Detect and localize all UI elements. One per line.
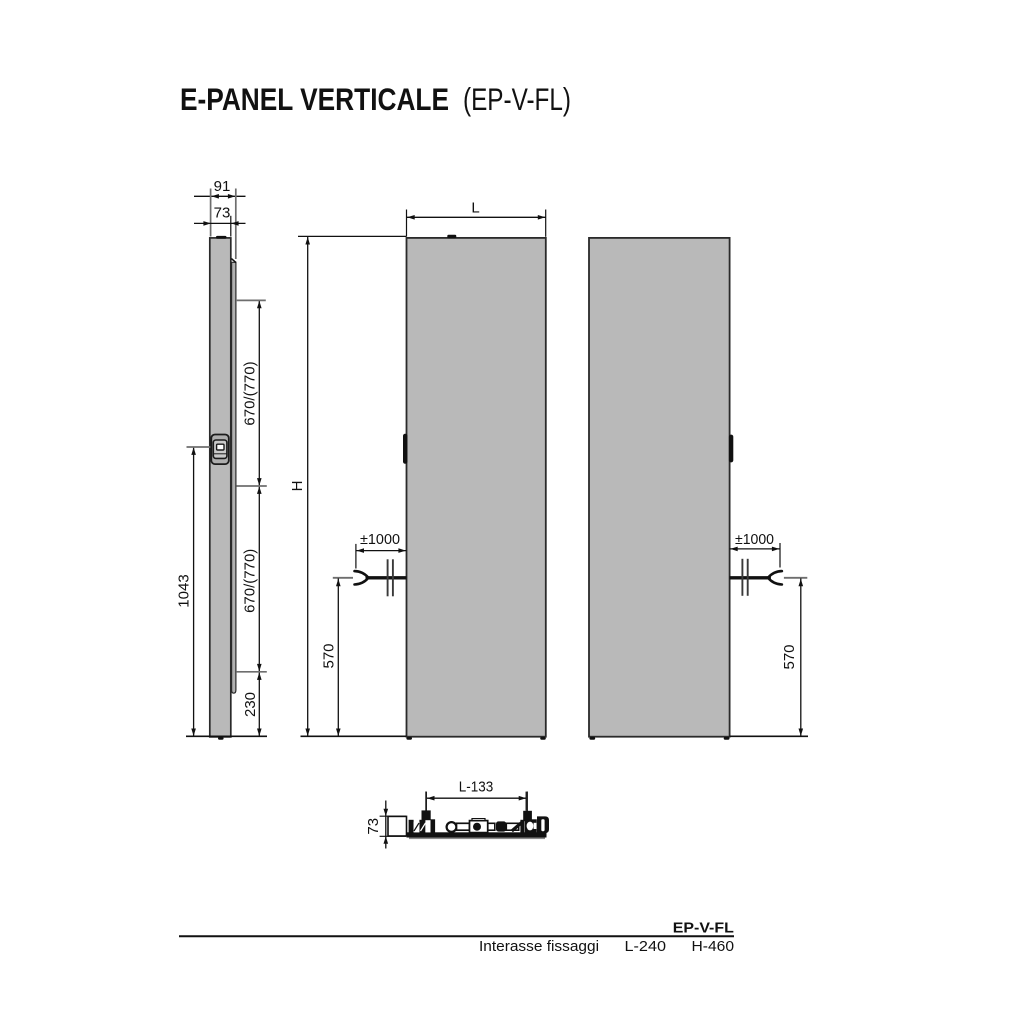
svg-text:73: 73 xyxy=(214,205,231,222)
svg-text:1043: 1043 xyxy=(176,574,193,607)
svg-text:±1000: ±1000 xyxy=(360,532,400,548)
svg-text:EP-V-FL: EP-V-FL xyxy=(673,920,734,937)
svg-text:H: H xyxy=(289,481,306,492)
svg-text:±1000: ±1000 xyxy=(735,532,774,548)
svg-text:91: 91 xyxy=(214,178,231,195)
svg-text:(EP-V-FL): (EP-V-FL) xyxy=(463,81,571,117)
svg-text:570: 570 xyxy=(781,644,798,669)
svg-text:E-PANEL VERTICALE: E-PANEL VERTICALE xyxy=(180,81,449,117)
svg-text:570: 570 xyxy=(320,643,337,668)
svg-text:L: L xyxy=(471,199,479,216)
svg-text:670/(770): 670/(770) xyxy=(242,549,259,613)
svg-text:H-460: H-460 xyxy=(692,938,735,955)
svg-text:230: 230 xyxy=(242,692,259,717)
svg-text:L-133: L-133 xyxy=(459,779,494,796)
svg-text:Interasse fissaggi: Interasse fissaggi xyxy=(479,938,599,955)
svg-text:L-240: L-240 xyxy=(625,938,667,955)
svg-text:670/(770): 670/(770) xyxy=(242,361,259,425)
svg-text:73: 73 xyxy=(365,818,382,835)
